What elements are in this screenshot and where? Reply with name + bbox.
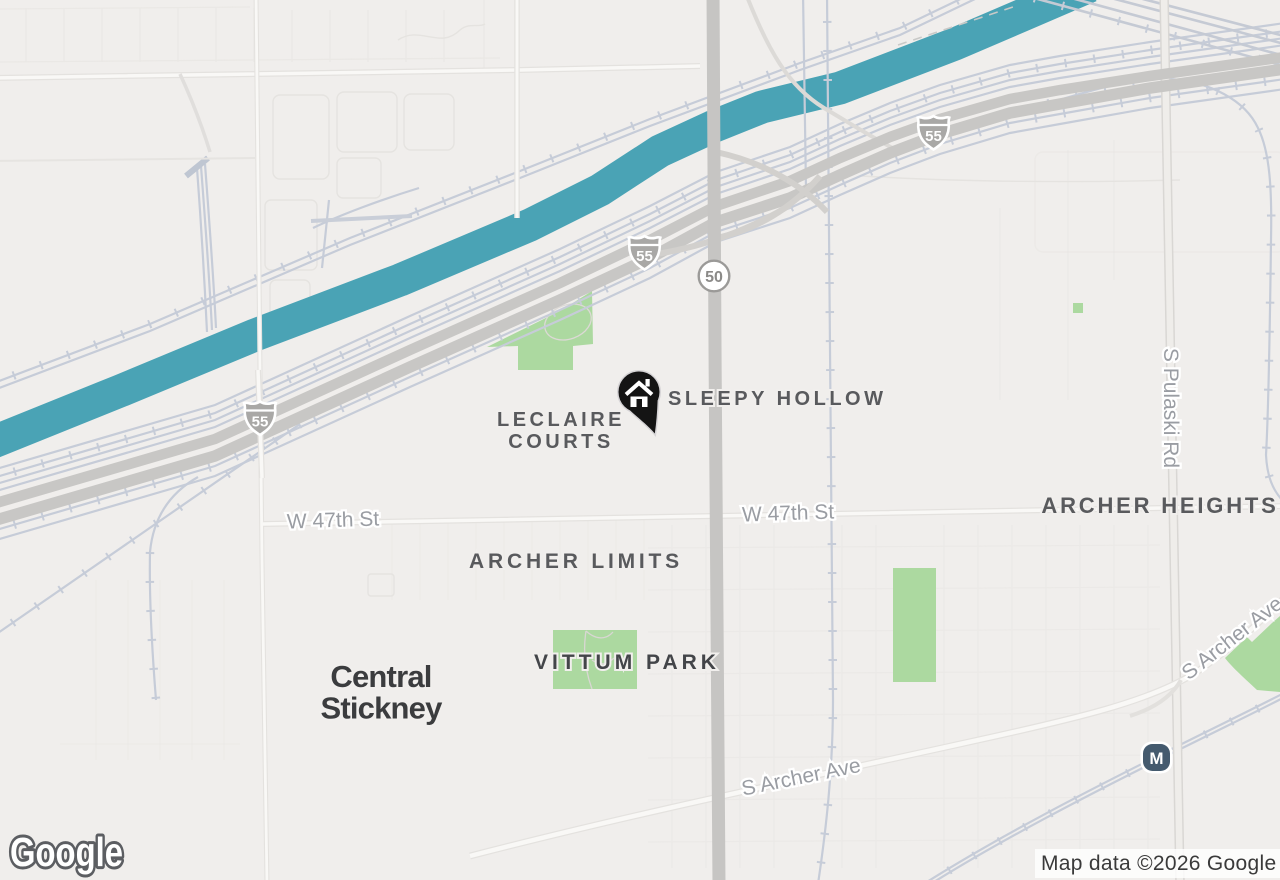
svg-text:55: 55 — [925, 128, 942, 145]
svg-text:ARCHER HEIGHTS: ARCHER HEIGHTS — [1041, 493, 1278, 518]
svg-text:55: 55 — [636, 248, 653, 265]
svg-text:ARCHER LIMITS: ARCHER LIMITS — [469, 550, 683, 573]
svg-text:M: M — [1149, 749, 1163, 768]
svg-text:LECLAIRE: LECLAIRE — [497, 409, 625, 431]
svg-text:W 47th St: W 47th St — [287, 507, 380, 533]
svg-text:Stickney: Stickney — [320, 691, 443, 726]
svg-text:S Pulaski Rd: S Pulaski Rd — [1159, 348, 1182, 468]
svg-text:COURTS: COURTS — [508, 431, 613, 453]
svg-text:SLEEPY HOLLOW: SLEEPY HOLLOW — [668, 388, 886, 410]
svg-text:VITTUM PARK: VITTUM PARK — [534, 651, 720, 674]
svg-text:Central: Central — [330, 659, 431, 694]
svg-text:55: 55 — [252, 414, 269, 431]
svg-text:50: 50 — [705, 269, 723, 286]
svg-text:Map data ©2026 Google: Map data ©2026 Google — [1041, 852, 1276, 875]
svg-text:Google: Google — [10, 829, 123, 875]
svg-text:W 47th St: W 47th St — [742, 500, 835, 526]
